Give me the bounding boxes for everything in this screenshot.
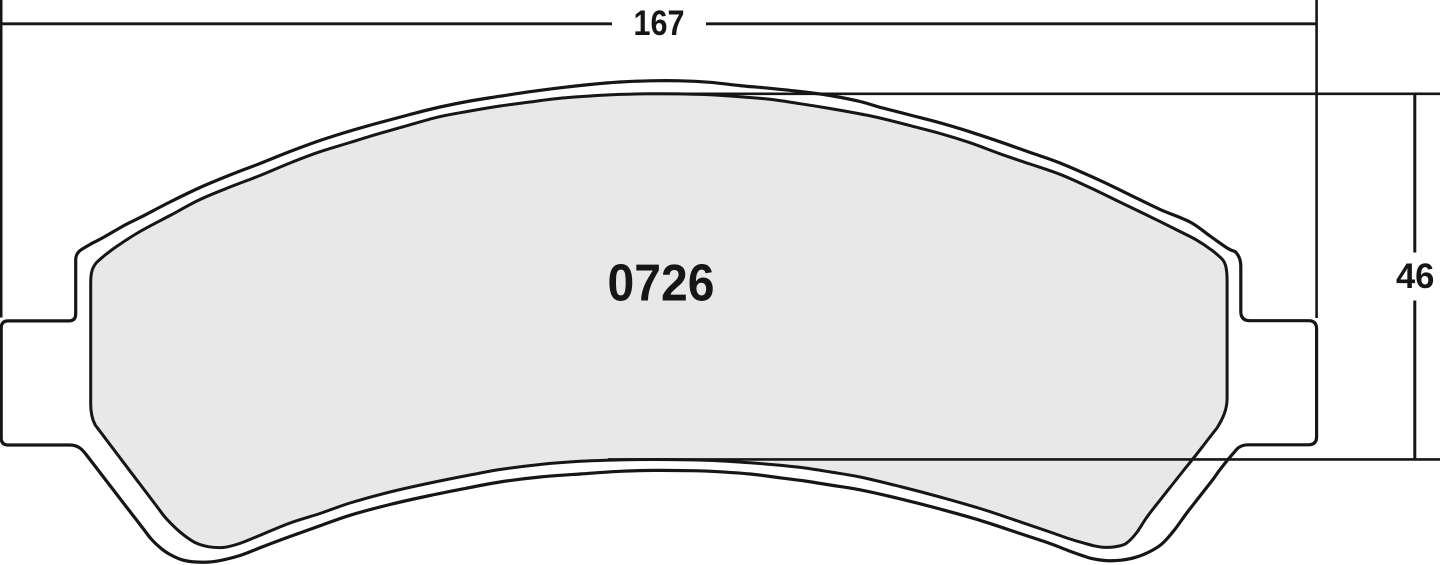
svg-text:0726: 0726 (608, 255, 715, 313)
svg-text:167: 167 (634, 4, 685, 43)
svg-text:46: 46 (1396, 256, 1435, 296)
